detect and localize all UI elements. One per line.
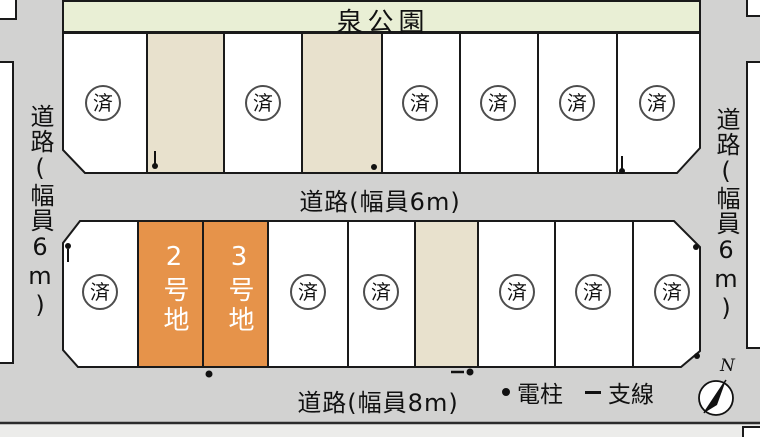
sold-mark: 済: [488, 93, 508, 113]
adjacent-parcel-right: [747, 62, 760, 348]
sold-mark: 済: [662, 282, 682, 302]
park-name: 泉公園: [283, 2, 483, 39]
sold-badge: 済: [480, 85, 516, 121]
utility-pole-icon: [619, 168, 625, 174]
sold-mark: 済: [298, 282, 318, 302]
sold-badge: 済: [85, 85, 121, 121]
pole-legend-label: 電柱: [517, 375, 563, 409]
sold-badge: 済: [245, 85, 281, 121]
lot-bottom-6-fill: [416, 222, 477, 366]
compass-icon: [699, 380, 733, 415]
utility-pole-icon: [694, 353, 700, 359]
wire-legend-label: 支線: [608, 375, 654, 409]
sold-mark: 済: [90, 282, 110, 302]
utility-pole-icon: [152, 163, 158, 169]
road-label-left: 道路(幅員6m): [23, 104, 58, 320]
lot-top-4-fill: [303, 34, 381, 172]
adjacent-parcel-top-left: [0, 0, 16, 19]
sold-badge: 済: [559, 85, 595, 121]
adjacent-parcel-left: [0, 62, 13, 363]
road-label-right: 道路(幅員6m): [709, 107, 744, 323]
adjacent-parcel-bottom-right: [743, 427, 760, 437]
adjacent-parcel-top-right: [747, 0, 760, 16]
lot-map: 泉公園 道路(幅員6m) 道路(幅員6m) 道路(幅員6m) 道路(幅員8m) …: [0, 0, 760, 437]
sold-badge: 済: [654, 274, 690, 310]
lot-2-label[interactable]: 2号地: [156, 242, 193, 336]
utility-pole-icon: [65, 243, 71, 249]
sold-badge: 済: [82, 274, 118, 310]
sold-badge: 済: [402, 85, 438, 121]
sold-mark: 済: [583, 282, 603, 302]
utility-pole-icon: [467, 369, 474, 376]
sold-badge: 済: [639, 85, 675, 121]
road-label-bottom: 道路(幅員8m): [278, 383, 478, 418]
lot-3-label[interactable]: 3号地: [221, 242, 258, 336]
sold-mark: 済: [567, 93, 587, 113]
lot-top-2-fill: [148, 34, 223, 172]
sold-badge: 済: [499, 274, 535, 310]
sold-mark: 済: [507, 282, 527, 302]
sold-mark: 済: [647, 93, 667, 113]
pole-legend-icon: [502, 388, 510, 396]
utility-pole-icon: [371, 164, 377, 170]
compass-north-label: N: [720, 356, 735, 376]
utility-pole-icon: [206, 371, 213, 378]
utility-pole-icon: [693, 244, 699, 250]
sold-mark: 済: [371, 282, 391, 302]
bottom-boundary-strip: [0, 424, 760, 437]
road-label-middle: 道路(幅員6m): [280, 182, 480, 217]
map-legend: 電柱 支線: [502, 379, 654, 405]
sold-badge: 済: [290, 274, 326, 310]
sold-badge: 済: [575, 274, 611, 310]
site-plan-drawing: [0, 0, 760, 437]
sold-badge: 済: [363, 274, 399, 310]
wire-legend-icon: [585, 391, 601, 394]
sold-mark: 済: [93, 93, 113, 113]
sold-mark: 済: [253, 93, 273, 113]
sold-mark: 済: [410, 93, 430, 113]
